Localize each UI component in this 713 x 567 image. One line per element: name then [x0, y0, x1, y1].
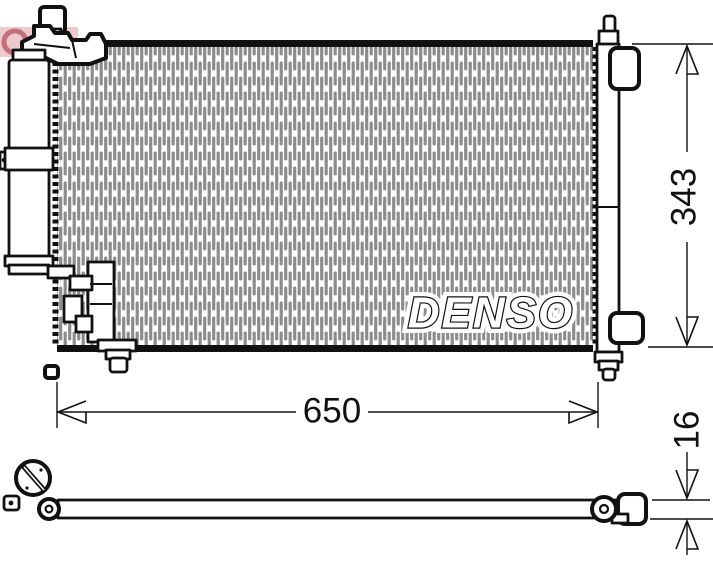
pipe-elbow-upper: [70, 276, 92, 290]
drier-bottom-cap-step: [9, 265, 49, 274]
bottom-pipe-fitting: [603, 369, 615, 380]
dimension-depth: 16: [650, 411, 713, 555]
left-tab-bolt-icon: [9, 501, 14, 506]
condenser-front-view: DENSO DENSO: [0, 7, 643, 380]
drier-end-detail-1: [39, 468, 42, 471]
left-port-hole-icon: [46, 506, 53, 513]
denso-watermark-text: DENSO: [408, 289, 574, 338]
pipe-elbow-lower: [76, 316, 92, 332]
lower-mount-bracket: [610, 313, 643, 343]
condenser-side-view: [4, 461, 646, 524]
right-tank-assembly: [595, 16, 643, 380]
dimension-width-label: 650: [303, 392, 361, 431]
upper-mount-bracket: [610, 48, 639, 89]
drier-end-detail-2: [25, 486, 28, 489]
foot-pin: [110, 358, 127, 372]
denso-watermark: DENSO DENSO: [408, 289, 574, 338]
dimension-width: 650: [57, 382, 598, 431]
dimension-height-label: 343: [665, 168, 704, 226]
right-port-hole-icon: [600, 505, 608, 513]
dimension-height: 343: [632, 44, 713, 347]
condenser-technical-drawing: DENSO DENSO 650 343: [0, 0, 713, 567]
clamp-bolt-icon: [2, 158, 7, 163]
side-view-bar: [58, 500, 620, 518]
dimension-depth-label: 16: [668, 411, 707, 450]
drier-bottom-nub: [45, 366, 58, 378]
drier-clamp-band: [5, 148, 53, 170]
core-top-bar: [57, 40, 593, 47]
